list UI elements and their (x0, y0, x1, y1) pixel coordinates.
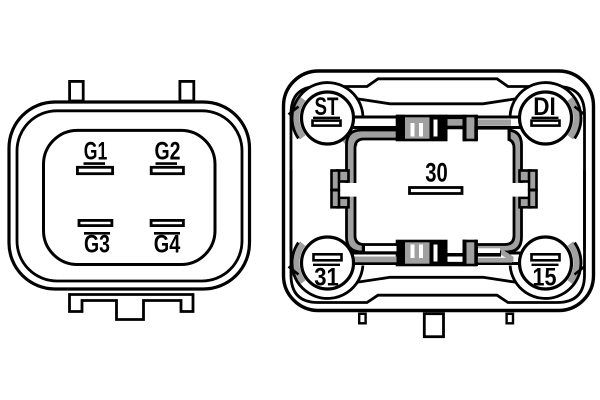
svg-text:31: 31 (314, 264, 339, 292)
svg-text:G4: G4 (154, 231, 181, 259)
svg-text:30: 30 (425, 158, 448, 188)
svg-text:G1: G1 (84, 138, 108, 166)
svg-text:G2: G2 (155, 138, 181, 166)
svg-text:15: 15 (533, 264, 557, 292)
svg-text:G3: G3 (84, 231, 110, 259)
